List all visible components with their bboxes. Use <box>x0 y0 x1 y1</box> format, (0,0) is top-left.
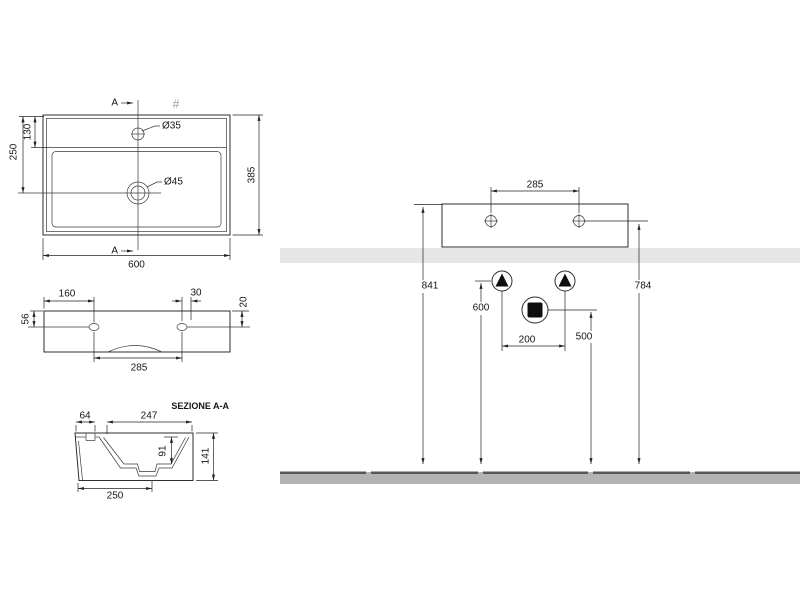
dim-supply-spacing: 200 <box>519 335 536 346</box>
dim-supply-height: 600 <box>473 303 490 314</box>
fixing-hole-right <box>572 214 586 228</box>
dim-height: 141 <box>201 447 212 464</box>
floor-top-edge <box>280 472 800 475</box>
front-view: 160 30 20 56 285 <box>21 288 251 374</box>
plan-view: A A # Ø35 Ø45 600 385 <box>9 97 264 271</box>
dim-plan-left-total: 250 <box>9 143 20 160</box>
wall-band <box>280 248 800 263</box>
dim-left-to-hole: 160 <box>59 289 76 300</box>
installation-view: 285 841 784 600 500 200 <box>280 180 800 485</box>
dim-plan-depth: 385 <box>247 166 258 183</box>
faucet-hole-section <box>86 433 95 441</box>
drain-symbol <box>522 297 548 323</box>
installation-dimensions: 285 841 784 600 500 200 <box>414 180 655 465</box>
dim-bowl-depth: 91 <box>158 445 169 457</box>
section-view: SEZIONE A-A 64 247 91 <box>75 401 229 502</box>
dim-rim-height: 841 <box>422 281 439 292</box>
section-dimensions: 64 247 91 141 250 <box>76 411 218 502</box>
section-marker-top: A <box>111 98 118 109</box>
dim-top-to-hole-right: 20 <box>239 296 250 308</box>
dim-top-to-hole-left: 56 <box>21 313 32 325</box>
label-faucet-hole: Ø35 <box>162 121 181 132</box>
fixing-hole-front-right <box>177 324 187 331</box>
drain-hole <box>18 182 161 204</box>
water-supply-symbol-right <box>555 271 575 291</box>
water-supply-symbol-left <box>492 271 512 291</box>
dim-plan-left-upper: 130 <box>23 123 34 140</box>
technical-drawing-sheet: 285 841 784 600 500 200 <box>0 0 800 600</box>
basin-technical-drawing: 285 841 784 600 500 200 <box>0 0 800 600</box>
fixing-hole-left <box>484 214 498 228</box>
bowl-outline-plan <box>52 152 221 228</box>
basin-outline-installation <box>442 204 628 247</box>
section-title: SEZIONE A-A <box>171 401 229 411</box>
dim-bowl-width: 247 <box>141 411 158 422</box>
basin-outline-plan <box>43 115 230 235</box>
bottom-arch <box>108 346 162 353</box>
floor-band <box>280 472 800 485</box>
dim-hole-inset: 30 <box>190 288 202 299</box>
dim-hole-spacing: 285 <box>131 363 148 374</box>
dim-fixing-holes: 285 <box>527 180 544 191</box>
dim-plan-width: 600 <box>128 260 145 271</box>
label-drain-hole: Ø45 <box>164 177 183 188</box>
basin-rim-plan <box>47 119 227 232</box>
dim-ledge: 64 <box>79 411 91 422</box>
dim-drain-height: 500 <box>576 332 593 343</box>
dim-base-width: 250 <box>107 491 124 502</box>
hash-symbol: # <box>173 97 180 111</box>
section-marker-bottom: A <box>111 246 118 257</box>
fixing-hole-front-left <box>89 324 99 331</box>
dim-fixing-height: 784 <box>635 281 652 292</box>
front-dimensions: 160 30 20 56 285 <box>21 288 250 374</box>
